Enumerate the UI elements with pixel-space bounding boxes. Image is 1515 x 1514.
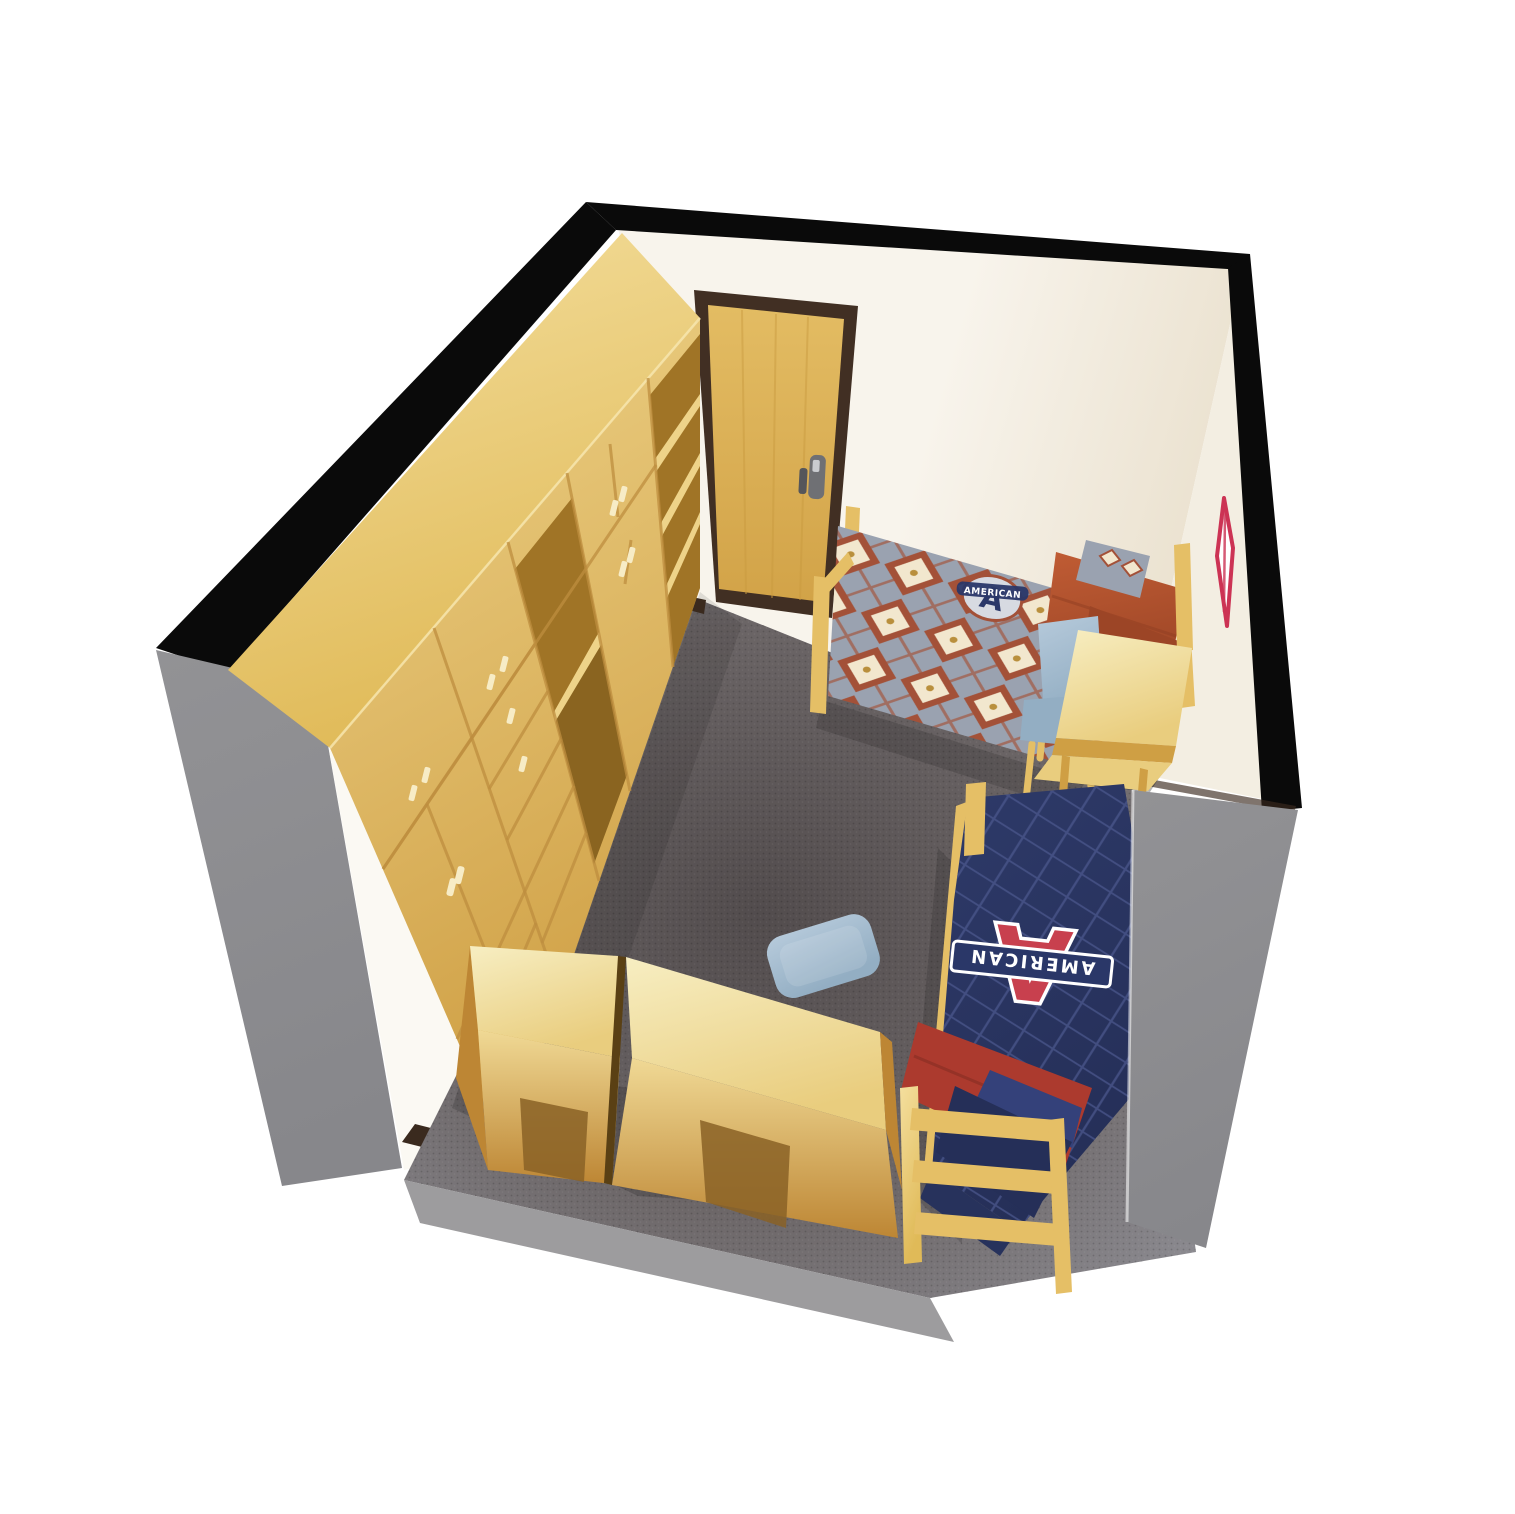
desk1-top: [1056, 630, 1192, 746]
bed2-head-post: [964, 782, 986, 856]
dorm-room-cutaway-scene: A AMERICAN: [0, 0, 1515, 1514]
bed1-foot-post: [1174, 543, 1193, 652]
room-render: A AMERICAN: [0, 0, 1515, 1514]
desk-left-leg-notch: [520, 1098, 588, 1182]
desk-left: [456, 946, 620, 1184]
